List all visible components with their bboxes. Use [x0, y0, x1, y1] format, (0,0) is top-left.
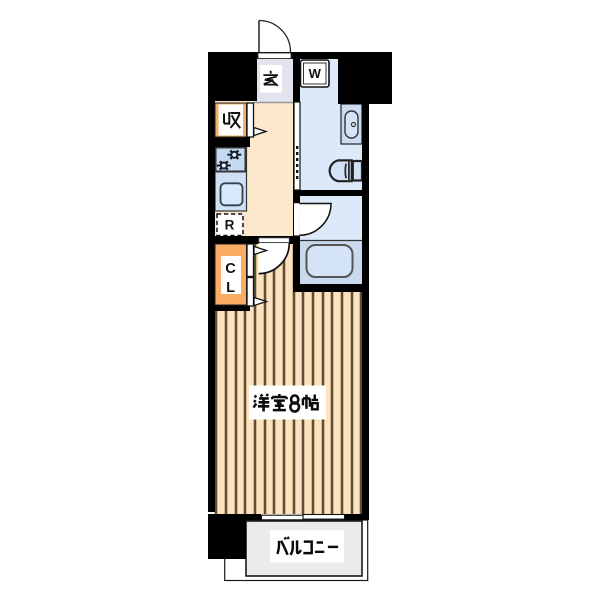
svg-text:W: W: [309, 66, 322, 81]
svg-text:R: R: [225, 217, 235, 232]
svg-text:L: L: [226, 280, 235, 296]
svg-text:C: C: [225, 261, 236, 277]
